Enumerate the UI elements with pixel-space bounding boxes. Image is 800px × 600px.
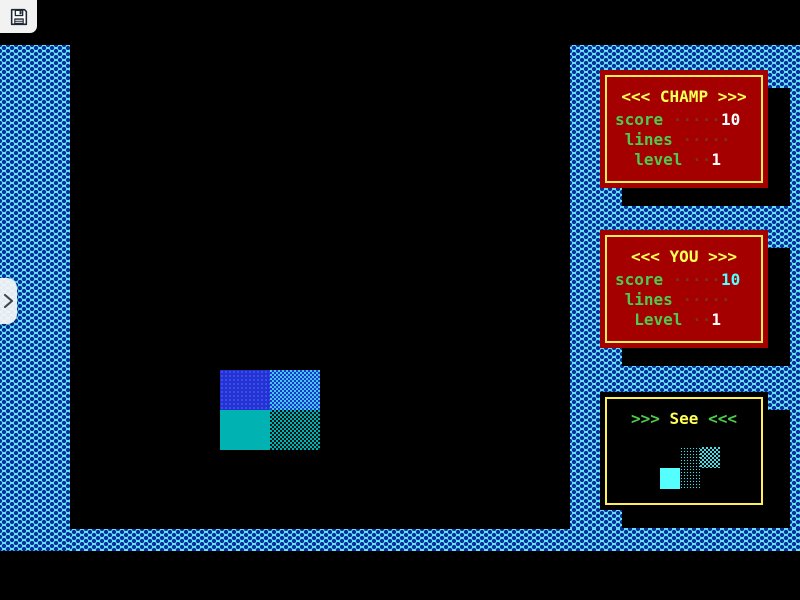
you-score-panel: <<< YOU >>> score ·····10 lines ····· Le… bbox=[600, 230, 768, 348]
you-score-value: 10 bbox=[721, 270, 740, 289]
preview-block-dither bbox=[680, 468, 700, 489]
dot-leader: ·· bbox=[682, 150, 711, 169]
playfield-block-teal-dither bbox=[270, 410, 320, 450]
dot-leader: ····· bbox=[673, 130, 731, 149]
score-label: score bbox=[615, 270, 663, 289]
you-level-row: Level ··1 bbox=[615, 310, 760, 330]
dot-leader: ····· bbox=[663, 270, 721, 289]
see-title-arrows-left: >>> bbox=[631, 409, 660, 428]
floor-wall bbox=[70, 529, 800, 551]
lines-label: lines bbox=[615, 130, 673, 149]
preview-block-solid bbox=[660, 468, 680, 489]
drawer-toggle-button[interactable] bbox=[0, 278, 17, 324]
playfield-block-blue-dither bbox=[270, 370, 320, 410]
dot-leader: ·· bbox=[682, 310, 711, 329]
you-lines-row: lines ····· bbox=[615, 290, 760, 310]
preview-block-dither bbox=[700, 447, 720, 468]
you-panel-title: <<< YOU >>> bbox=[600, 247, 768, 266]
champ-score-panel: <<< CHAMP >>> score ·····10 lines ····· … bbox=[600, 70, 768, 188]
you-level-value: 1 bbox=[711, 310, 721, 329]
you-score-row: score ·····10 bbox=[615, 270, 760, 290]
lines-label: lines bbox=[615, 290, 673, 309]
next-piece-panel: >>> See <<< bbox=[600, 392, 768, 510]
level-label: level bbox=[615, 150, 682, 169]
chevron-right-icon bbox=[2, 293, 15, 309]
save-button[interactable] bbox=[0, 0, 37, 33]
champ-score-value: 10 bbox=[721, 110, 740, 129]
dot-leader: ····· bbox=[663, 110, 721, 129]
playfield-block-teal-solid bbox=[220, 410, 270, 450]
champ-level-row: level ··1 bbox=[615, 150, 760, 170]
champ-lines-row: lines ····· bbox=[615, 130, 760, 150]
see-title-word: See bbox=[660, 409, 708, 428]
see-title-arrows-right: <<< bbox=[708, 409, 737, 428]
see-panel-title: >>> See <<< bbox=[600, 409, 768, 428]
floppy-disk-icon bbox=[8, 6, 30, 28]
level-label: Level bbox=[615, 310, 682, 329]
champ-panel-title: <<< CHAMP >>> bbox=[600, 87, 768, 106]
dot-leader: ····· bbox=[673, 290, 731, 309]
score-label: score bbox=[615, 110, 663, 129]
champ-score-row: score ·····10 bbox=[615, 110, 760, 130]
playfield-block-blue-solid bbox=[220, 370, 270, 410]
preview-block-dither bbox=[680, 447, 700, 468]
champ-level-value: 1 bbox=[711, 150, 721, 169]
